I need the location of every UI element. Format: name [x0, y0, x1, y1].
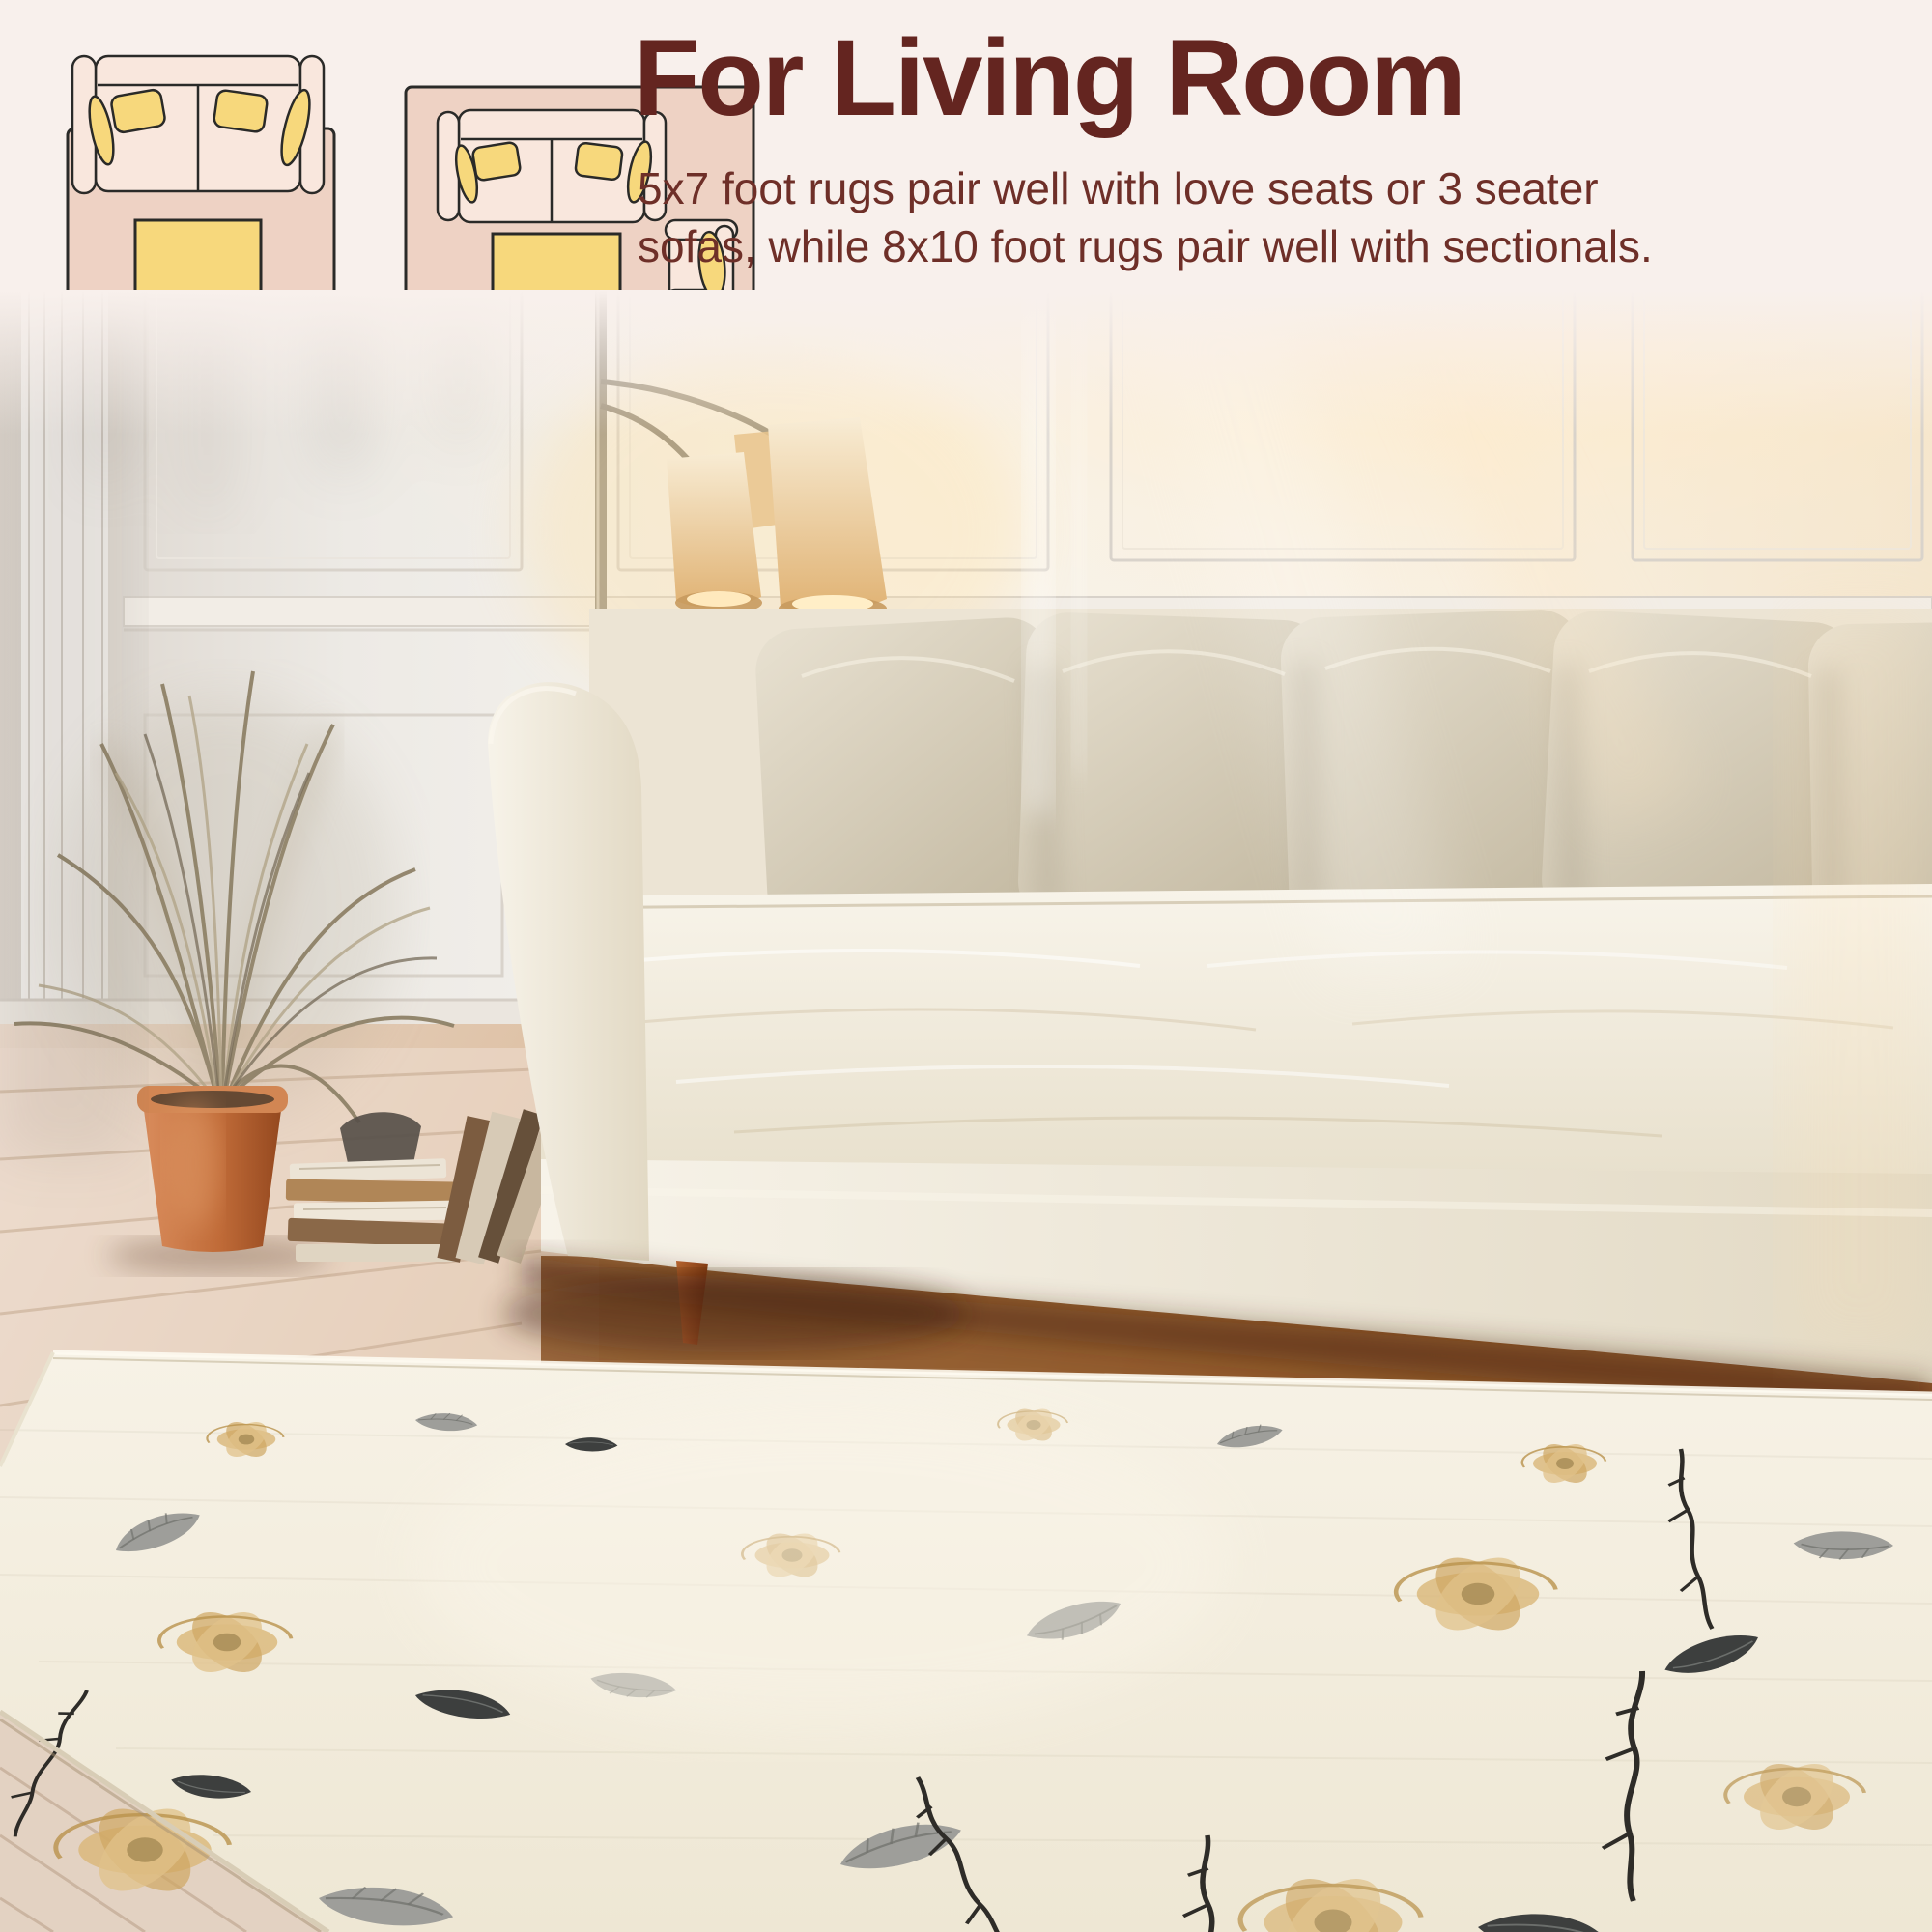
section-title: For Living Room	[634, 21, 1464, 135]
size-guide-line-1: 5x7 foot rugs pair well with love seats …	[638, 163, 1599, 213]
sofa-seat	[541, 884, 1932, 1193]
terracotta-pot	[137, 1086, 288, 1252]
rug-product-infographic: 5x7 8x10 For Living Room 5x7 foot rugs p…	[0, 0, 1932, 1932]
rug-size-diagram-5x7	[53, 37, 343, 331]
cream-sofa	[488, 609, 1932, 1415]
floral-area-rug	[0, 1352, 1932, 1932]
sofa-icon	[438, 110, 666, 222]
size-guide-text: 5x7 foot rugs pair well with love seats …	[638, 160, 1653, 276]
loveseat-icon	[72, 56, 324, 193]
living-room-photo	[0, 290, 1932, 1932]
size-guide-line-2: sofas, while 8x10 foot rugs pair well wi…	[638, 221, 1653, 271]
